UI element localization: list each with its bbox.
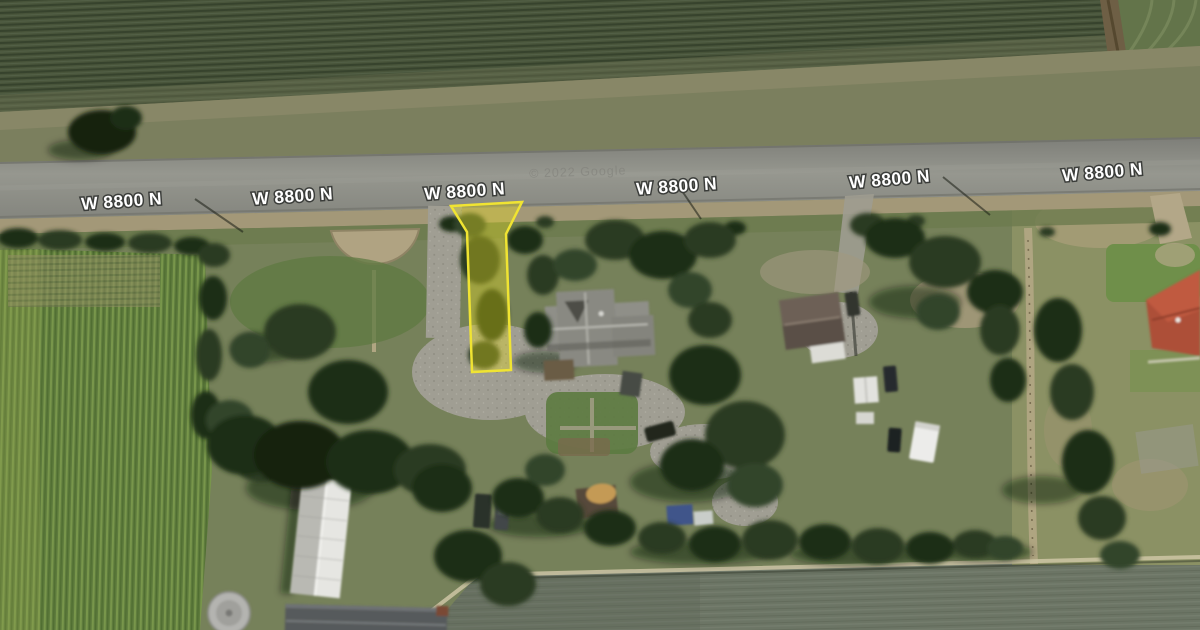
map-canvas[interactable]: W 8800 NW 8800 NW 8800 NW 8800 NW 8800 N… <box>0 0 1200 630</box>
gray-shed <box>694 510 714 525</box>
garden <box>546 392 638 456</box>
small-white-shed <box>856 412 874 424</box>
small-shed <box>619 371 642 398</box>
white-shed <box>853 376 879 404</box>
dirt-footpath <box>1028 228 1034 564</box>
satellite-imagery: W 8800 NW 8800 NW 8800 NW 8800 NW 8800 N… <box>0 0 1200 630</box>
blue-structure <box>666 504 693 526</box>
grain-silo <box>208 592 250 630</box>
